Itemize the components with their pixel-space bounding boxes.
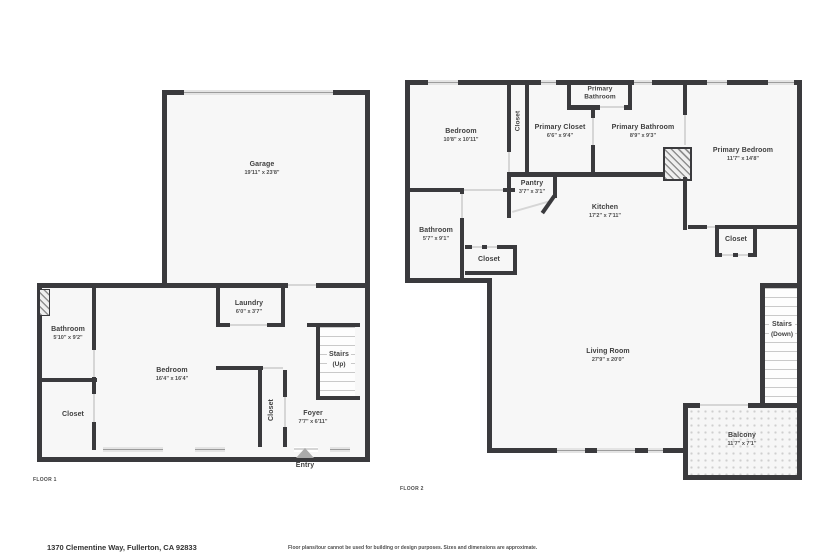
room-name: Bathroom [51,325,85,335]
floorplan-canvas: Garage 19'11" x 23'8" Bathroom 5'10" x 9… [0,0,839,560]
wall [37,378,97,382]
wall [216,288,220,327]
wall [405,278,492,283]
stairs-treads [765,288,797,403]
room-name: Primary Bathroom [612,123,675,133]
wall [465,271,517,275]
room-label-living-room: Living Room 27'9" x 20'0" [586,347,630,365]
room-label-primary-bathroom: Primary Bathroom 8'9" x 9'3" [612,123,675,141]
wall [405,188,462,192]
room-name: Bedroom [156,366,188,376]
entry-label: Entry [296,461,314,471]
wall [797,80,802,480]
wall [715,225,802,229]
floor2-lower-fill [487,408,688,453]
door-marker [93,350,95,377]
room-label-bathroom2: Bathroom 5'7" x 9'1" [419,226,453,244]
floor1-tag: FLOOR 1 [33,477,57,483]
room-label-bath-closet: Closet [478,255,500,265]
room-label-foyer: Foyer 7'7" x 6'11" [299,409,328,427]
shower-hatch [39,289,50,316]
room-dims: (Down) [771,330,793,339]
floor2-tag: FLOOR 2 [400,486,424,492]
wall [507,172,663,177]
wall [92,382,96,394]
door-marker [288,284,316,286]
room-dims: 7'7" x 6'11" [299,419,328,427]
room-label-closet: Closet [62,410,84,420]
window-marker [597,448,635,453]
room-dims: 11'7" x 14'8" [713,156,773,164]
room-dims: 6'6" x 9'4" [535,133,586,141]
wall [92,422,96,450]
room-name: Bathroom [419,226,453,236]
door-marker [722,254,733,256]
room-name: Stairs [771,320,793,330]
room-label-bedroom2: Bedroom 10'8" x 10'11" [443,127,478,145]
room-label-kitchen: Kitchen 17'2" x 7'11" [589,203,621,221]
wall [591,110,595,118]
window-marker [195,447,225,452]
wall [92,288,96,350]
room-dims: 3'7" x 3'1" [519,189,545,197]
room-name: Bedroom [443,127,478,137]
wall [283,427,287,447]
wall [688,225,707,229]
wall [683,85,687,115]
window-marker [541,80,556,85]
wall [624,105,632,110]
door-marker [284,397,286,427]
wall [216,323,230,327]
room-dims: 5'10" x 9'2" [51,335,85,343]
door-marker [700,404,748,406]
room-label-balcony: Balcony 11'7" x 7'1" [728,431,757,449]
address-text: 1370 Clementine Way, Fullerton, CA 92833 [47,543,197,552]
door-marker [508,152,510,174]
door-marker [487,246,497,248]
door-marker [738,254,748,256]
door-marker [684,115,686,145]
wall [525,80,529,174]
garage-door-marker [184,90,333,95]
door-marker [600,106,624,108]
room-label-bedroom: Bedroom 16'4" x 16'4" [156,366,188,384]
window-marker [768,80,794,85]
room-name: Kitchen [589,203,621,213]
room-dims: 19'11" x 23'8" [244,170,279,178]
room-name: Primary Closet [535,123,586,133]
door-marker [472,246,482,248]
room-label-primary-bath-wc: Primary Bathroom [577,86,623,103]
wall [258,366,262,447]
room-dims: 5'7" x 9'1" [419,236,453,244]
window-marker [634,80,652,85]
wall [683,177,687,230]
window-marker [648,448,663,453]
room-label-foyer-closet: Closet [267,399,277,421]
door-marker [263,367,283,369]
room-label-primary-closet: Primary Closet 6'6" x 9'4" [535,123,586,141]
wall [316,396,360,400]
wall [405,80,410,283]
window-marker [330,447,350,452]
room-dims: (Up) [329,360,349,369]
room-label-bedroom-closet: Closet [725,235,747,245]
room-dims: 8'9" x 9'3" [612,133,675,141]
door-marker [592,118,594,145]
wall [507,188,511,218]
room-label-stairs-up: Stairs (Up) [327,350,351,370]
wall [405,80,802,85]
room-dims: 11'7" x 7'1" [728,441,757,449]
fireplace-hatch [663,147,692,181]
wall [683,475,802,480]
room-label-pantry: Pantry 3'7" x 3'1" [519,179,545,197]
wall [216,366,263,370]
room-name: Stairs [329,350,349,360]
window-marker [557,448,585,453]
room-label-laundry: Laundry 6'0" x 3'7" [235,299,263,317]
window-marker [103,447,163,452]
door-marker [230,324,267,326]
window-marker [428,80,458,85]
disclaimer-text: Floor plans/tour cannot be used for buil… [288,545,537,551]
room-dims: 6'0" x 3'7" [235,309,263,317]
room-dims: 17'2" x 7'11" [589,213,621,221]
entry-arrow-icon [296,448,314,458]
door-marker [461,194,463,218]
room-name: Primary Bedroom [713,146,773,156]
door-marker [462,189,503,191]
floor2-mid-fill [487,283,802,408]
room-label-hall-closet: Closet [513,111,522,131]
wall [567,105,600,110]
room-label-garage: Garage 19'11" x 23'8" [244,160,279,178]
wall [487,278,492,453]
wall [507,80,511,152]
room-name: Balcony [728,431,757,441]
wall [591,145,595,177]
wall [281,288,285,327]
room-name: Pantry [519,179,545,189]
room-name: Garage [244,160,279,170]
wall [460,218,464,283]
room-dims: 27'9" x 20'0" [586,357,630,365]
wall [267,323,285,327]
room-label-bathroom: Bathroom 5'10" x 9'2" [51,325,85,343]
room-dims: 10'8" x 10'11" [443,137,478,145]
window-marker [707,80,727,85]
room-name: Living Room [586,347,630,357]
room-label-stairs-down: Stairs (Down) [769,320,795,340]
door-marker [93,394,95,422]
room-label-primary-bedroom: Primary Bedroom 11'7" x 14'8" [713,146,773,164]
room-dims: 16'4" x 16'4" [156,376,188,384]
wall [283,370,287,397]
room-name: Foyer [299,409,328,419]
garage-room [162,90,370,297]
room-name: Laundry [235,299,263,309]
